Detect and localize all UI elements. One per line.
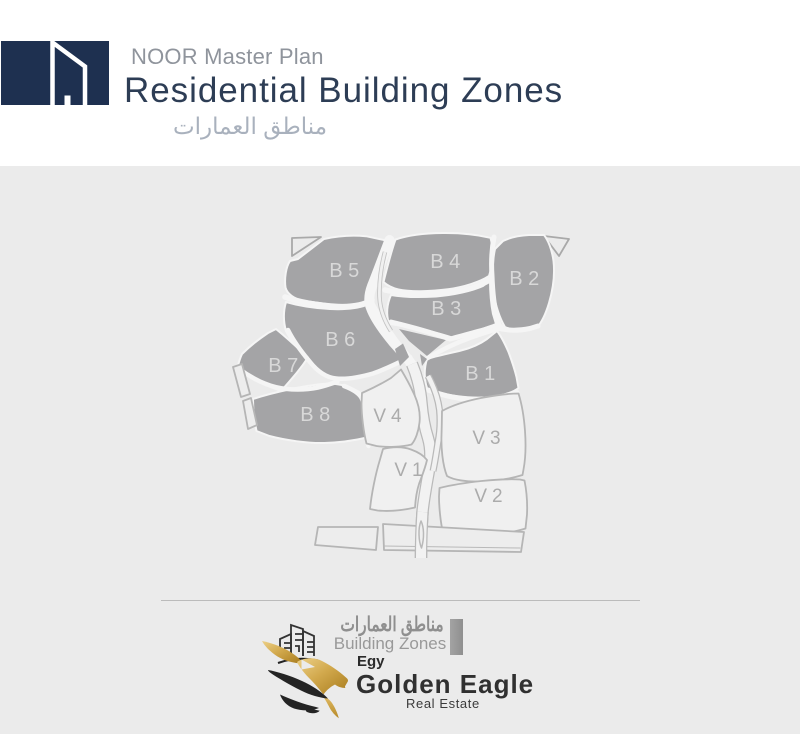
svg-text:V2: V2 [474,486,507,507]
svg-text:B5: B5 [329,260,364,282]
svg-text:B1: B1 [465,363,500,385]
svg-text:B7: B7 [268,355,303,377]
svg-text:V3: V3 [472,428,505,449]
svg-text:B6: B6 [325,329,360,351]
svg-text:B3: B3 [431,298,466,320]
svg-text:B4: B4 [430,251,465,273]
svg-text:B2: B2 [509,268,544,290]
svg-text:B8: B8 [300,404,335,426]
svg-text:V4: V4 [373,406,406,427]
svg-text:V1: V1 [394,460,427,481]
